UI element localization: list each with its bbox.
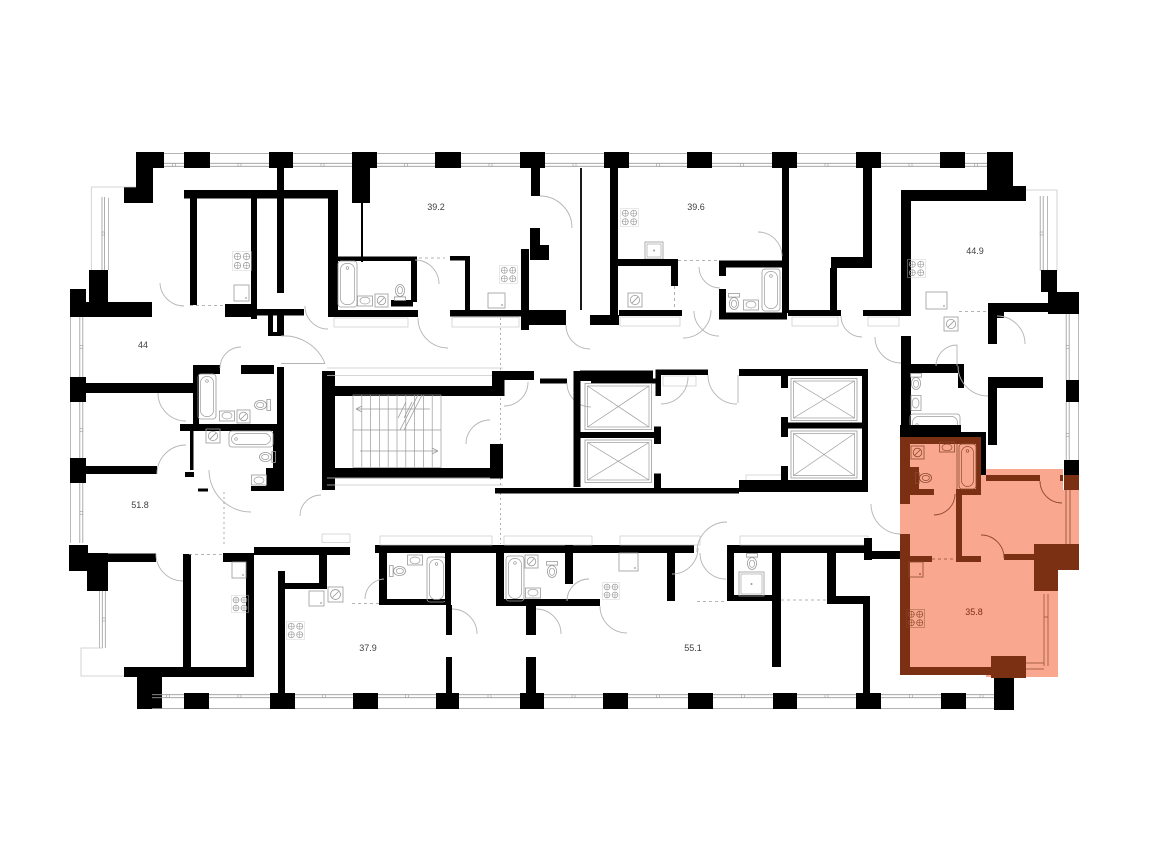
- svg-text:39.6: 39.6: [687, 202, 705, 212]
- svg-text:55.1: 55.1: [684, 643, 702, 653]
- svg-text:35.8: 35.8: [965, 607, 983, 617]
- svg-text:39.2: 39.2: [427, 202, 445, 212]
- svg-text:44: 44: [138, 340, 148, 350]
- svg-text:51.8: 51.8: [131, 500, 149, 510]
- svg-text:44.9: 44.9: [966, 246, 984, 256]
- svg-text:37.9: 37.9: [359, 643, 377, 653]
